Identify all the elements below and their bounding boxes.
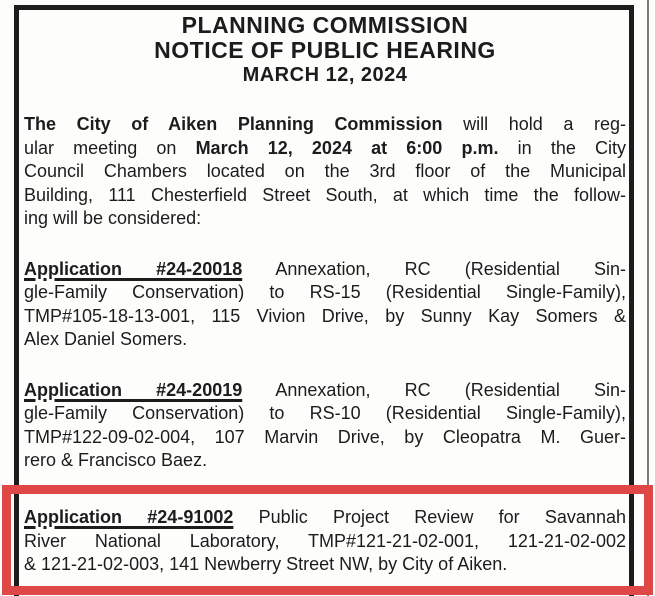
notice-page: PLANNING COMMISSION NOTICE OF PUBLIC HEA…: [0, 0, 655, 596]
notice-text: Annexation, RC (Residential Sin-: [242, 380, 626, 400]
notice-text: Building, 111 Chesterfield Street South,…: [24, 185, 626, 205]
notice-text: TMP#122-09-02-004, 107 Marvin Drive, by …: [24, 427, 626, 447]
notice-text: will hold a reg-: [442, 114, 626, 134]
notice-text: ing will be considered:: [24, 208, 201, 228]
notice-header: PLANNING COMMISSION NOTICE OF PUBLIC HEA…: [24, 13, 626, 88]
application-id: Application #24-20019: [24, 380, 242, 400]
notice-text: Public Project Review for Savannah: [233, 507, 626, 527]
notice-line: TMP#105-18-13-001, 115 Vivion Drive, by …: [24, 305, 626, 329]
notice-line: rero & Francisco Baez.: [24, 449, 626, 473]
notice-text: Alex Daniel Somers.: [24, 329, 187, 349]
notice-line: River National Laboratory, TMP#121-21-02…: [24, 530, 626, 554]
application-24-20019-paragraph: Application #24-20019 Annexation, RC (Re…: [24, 379, 626, 473]
notice-text: in the City: [498, 138, 626, 158]
application-id: Application #24-20018: [24, 259, 242, 279]
notice-title-line1: PLANNING COMMISSION: [24, 13, 626, 38]
application-24-20018-paragraph: Application #24-20018 Annexation, RC (Re…: [24, 258, 626, 352]
notice-line: TMP#122-09-02-004, 107 Marvin Drive, by …: [24, 426, 626, 450]
notice-content: PLANNING COMMISSION NOTICE OF PUBLIC HEA…: [24, 10, 626, 595]
notice-text: TMP#105-18-13-001, 115 Vivion Drive, by …: [24, 306, 626, 326]
notice-line: & 121-21-02-003, 141 Newberry Street NW,…: [24, 553, 626, 577]
notice-line: Alex Daniel Somers.: [24, 328, 626, 352]
notice-text: The City of Aiken Planning Commission: [24, 114, 442, 134]
notice-text: River National Laboratory, TMP#121-21-02…: [24, 531, 626, 551]
notice-date: MARCH 12, 2024: [24, 63, 626, 88]
intro-paragraph: The City of Aiken Planning Commission wi…: [24, 113, 626, 231]
notice-text: Annexation, RC (Residential Sin-: [242, 259, 626, 279]
notice-line: gle-Family Conservation) to RS-15 (Resid…: [24, 281, 626, 305]
notice-text: March 12, 2024 at 6:00 p.m.: [196, 138, 499, 158]
application-24-91002-paragraph: Application #24-91002 Public Project Rev…: [24, 506, 626, 577]
notice-line: ing will be considered:: [24, 207, 626, 231]
notice-line: Building, 111 Chesterfield Street South,…: [24, 184, 626, 208]
notice-text: rero & Francisco Baez.: [24, 450, 207, 470]
notice-line: ular meeting on March 12, 2024 at 6:00 p…: [24, 137, 626, 161]
notice-text: & 121-21-02-003, 141 Newberry Street NW,…: [24, 554, 507, 574]
application-id: Application #24-91002: [24, 507, 233, 527]
notice-text: gle-Family Conservation) to RS-15 (Resid…: [24, 282, 626, 302]
notice-line: Application #24-20019 Annexation, RC (Re…: [24, 379, 626, 403]
highlight-box: Application #24-91002 Public Project Rev…: [2, 485, 653, 595]
notice-text: Council Chambers located on the 3rd floo…: [24, 161, 626, 181]
notice-line: The City of Aiken Planning Commission wi…: [24, 113, 626, 137]
notice-line: Application #24-91002 Public Project Rev…: [24, 506, 626, 530]
notice-line: gle-Family Conservation) to RS-10 (Resid…: [24, 402, 626, 426]
notice-text: ular meeting on: [24, 138, 196, 158]
notice-line: Application #24-20018 Annexation, RC (Re…: [24, 258, 626, 282]
notice-title-line2: NOTICE OF PUBLIC HEARING: [24, 38, 626, 63]
notice-line: Council Chambers located on the 3rd floo…: [24, 160, 626, 184]
notice-text: gle-Family Conservation) to RS-10 (Resid…: [24, 403, 626, 423]
